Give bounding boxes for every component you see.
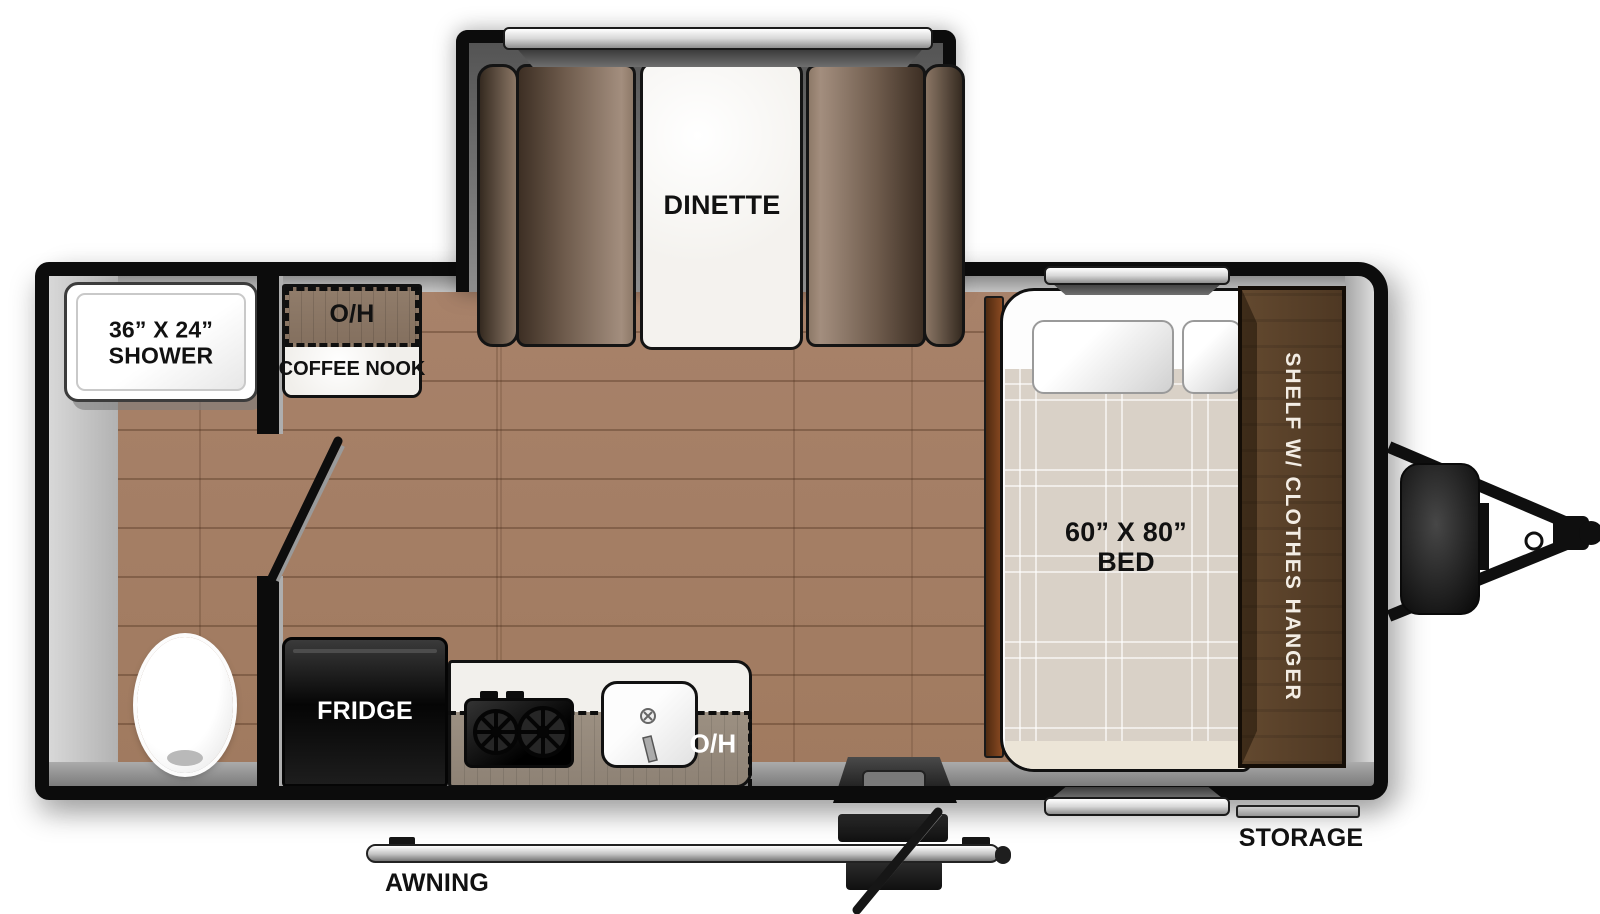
bed-text: BED [1065, 547, 1187, 577]
awning-bar [366, 844, 1000, 863]
bed-label: 60” X 80” BED [1065, 517, 1187, 577]
shelf-label: SHELF W/ CLOTHES HANGER [1280, 352, 1304, 701]
storage-hatch [1236, 805, 1360, 818]
fridge-label: FRIDGE [317, 697, 413, 725]
bed-size: 60” X 80” [1065, 517, 1187, 547]
dinette-bench-backrest-left [477, 64, 519, 347]
hitch-bar-lower [1389, 539, 1579, 616]
safety-chain-hole [1526, 533, 1542, 549]
storage-label: STORAGE [1239, 824, 1364, 852]
hitch-coupler [1553, 516, 1589, 550]
dinette-bench-right [806, 64, 926, 347]
awning-label: AWNING [385, 869, 489, 897]
dinette-bench-left [516, 64, 636, 347]
coffee-nook-oh-label: O/H [329, 300, 374, 328]
shower-size: 36” X 24” [109, 317, 214, 343]
shower-label: 36” X 24” SHOWER [109, 317, 214, 369]
entry-step-outer-upper [838, 814, 948, 842]
dinette-label: DINETTE [664, 190, 781, 220]
slideout-window [503, 27, 933, 50]
bedroom-window-top [1044, 266, 1230, 285]
kitchen-oh-label: O/H [690, 729, 737, 758]
entry-step-outer-lower [846, 860, 942, 890]
awning-end-cap [995, 846, 1011, 864]
shower-text: SHOWER [109, 343, 214, 369]
hitch-coupler-tip [1579, 521, 1600, 545]
floorplan-stage: DINETTE 36” X 24” SHOWER O/H COFFEE NOOK… [0, 0, 1600, 914]
slideout-window-shade [512, 50, 928, 67]
bedroom-window-bottom [1044, 797, 1230, 816]
coffee-nook-label: COFFEE NOOK [279, 358, 426, 380]
hitch-bar-upper [1389, 447, 1579, 528]
propane-tank [1401, 464, 1479, 614]
hitch-assembly [1389, 447, 1600, 616]
dinette-bench-backrest-right [923, 64, 965, 347]
